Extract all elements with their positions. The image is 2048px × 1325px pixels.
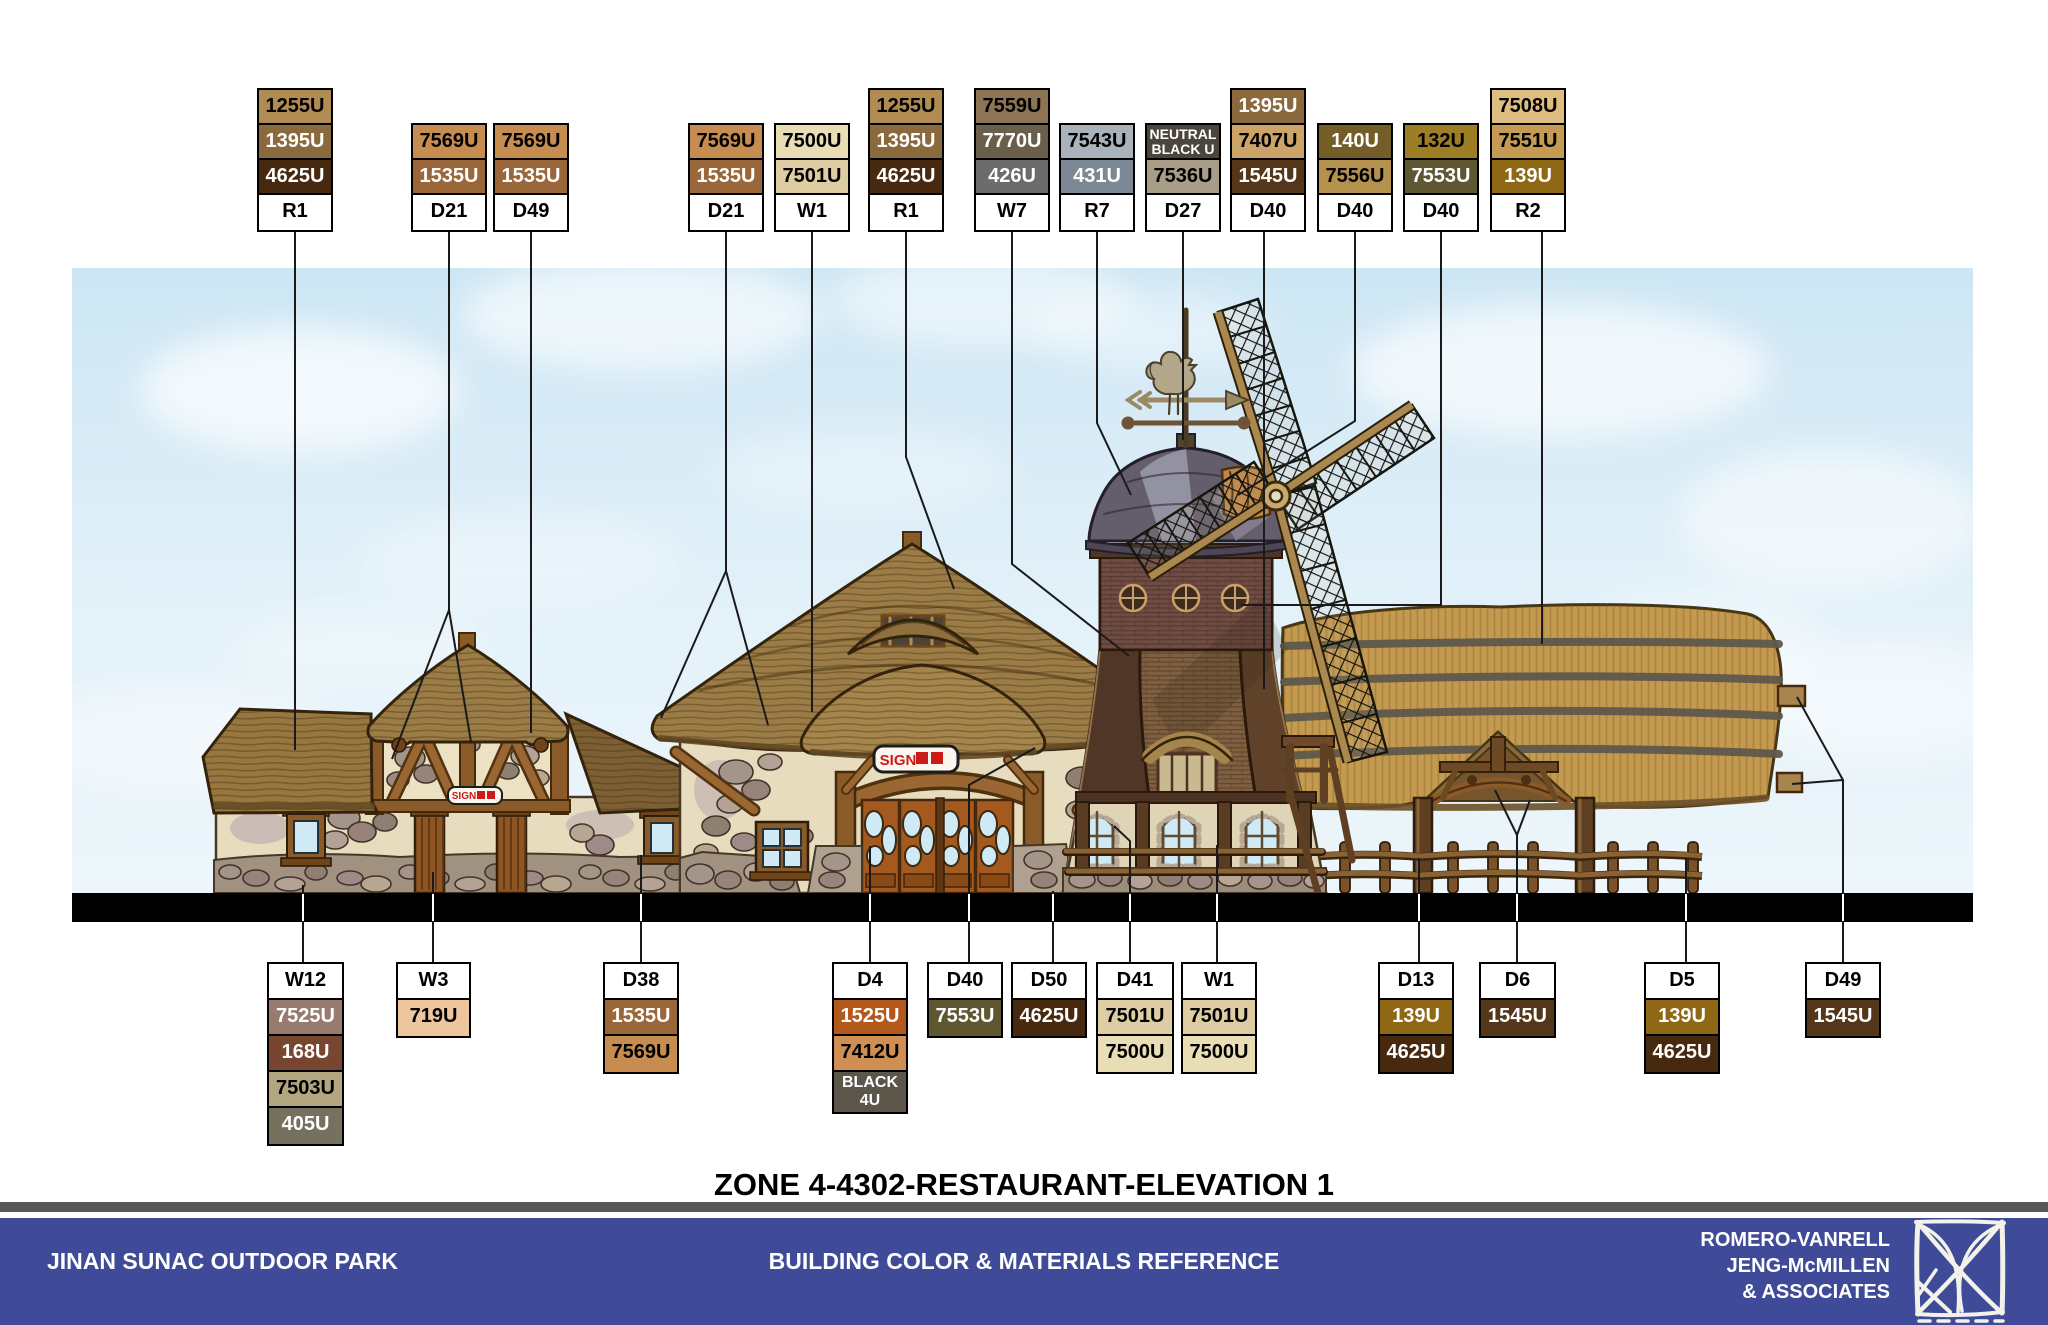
svg-text:SIGN: SIGN (880, 752, 917, 769)
svg-text:SIGN: SIGN (452, 791, 476, 802)
